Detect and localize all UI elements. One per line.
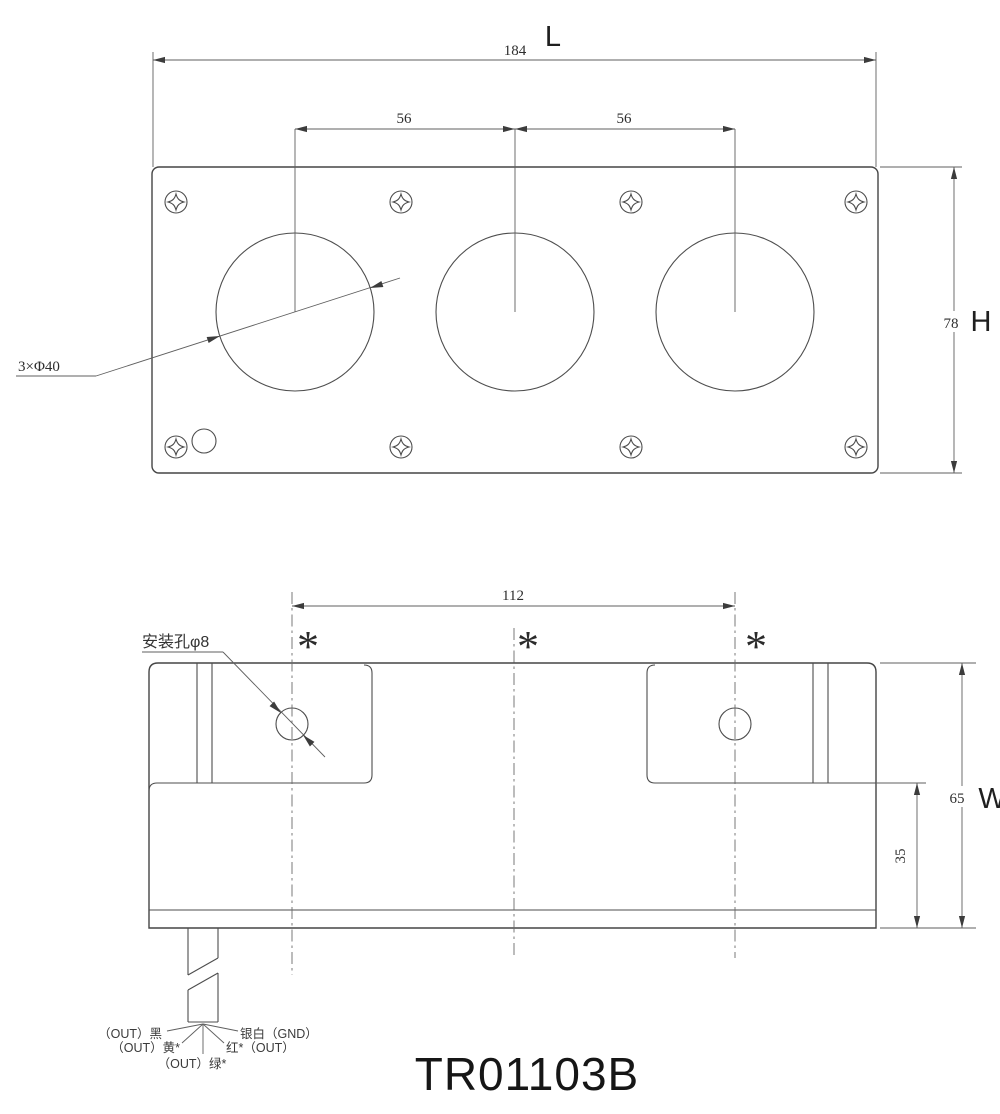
wire-label-silver: 银白（GND） (240, 1026, 318, 1041)
output-cable (188, 928, 218, 1022)
small-pilot-hole (192, 429, 216, 453)
phillips-screw-icon (845, 436, 867, 458)
asterisk-mark: * (517, 622, 539, 671)
callout-phi40: 3×Φ40 (16, 278, 400, 376)
dim-pitch-56: 56 56 (295, 111, 735, 129)
dim-hole-pitch-value: 112 (502, 588, 524, 604)
asterisk-mark: * (745, 622, 767, 671)
front-view-body-outline (149, 663, 876, 928)
height-symbol: H (971, 306, 992, 338)
phillips-screw-icon (390, 191, 412, 213)
dim-height-78: 78 H (880, 167, 991, 473)
phillips-screw-icon (845, 191, 867, 213)
phillips-screw-icon (620, 436, 642, 458)
dim-length-value: 184 (504, 43, 527, 59)
wire-label-black: （OUT）黑 (98, 1027, 162, 1041)
dim-length-184: 184 L (153, 21, 876, 167)
wire-labels: （OUT）黑 （OUT）黄* （OUT）绿* 红*（OUT） 银白（GND） (98, 1024, 318, 1071)
drawing-number: TR01103B (415, 1048, 640, 1100)
dim-hole-pitch-112: 112 (292, 588, 735, 606)
width-symbol: W (978, 783, 1000, 815)
asterisk-mark: * (297, 622, 319, 671)
length-symbol: L (545, 21, 561, 53)
top-view: 184 L 56 56 78 H 3×Φ40 (16, 21, 991, 473)
callout-phi40-text: 3×Φ40 (18, 359, 60, 375)
wire-label-yellow: （OUT）黄* (111, 1041, 180, 1055)
dim-base-value: 35 (893, 849, 909, 864)
dim-pitch-left-value: 56 (397, 111, 413, 127)
right-ear-step (647, 665, 876, 783)
left-ear-step (149, 665, 372, 791)
dim-pitch-right-value: 56 (617, 111, 633, 127)
dim-height-value: 78 (944, 316, 959, 332)
phillips-screw-icon (165, 191, 187, 213)
callout-mount-hole-text: 安装孔φ8 (142, 633, 209, 651)
dim-width-65: 65 W (880, 663, 1000, 928)
phillips-screw-icon (165, 436, 187, 458)
dim-base-35: 35 (876, 783, 926, 928)
drawing-sheet: 184 L 56 56 78 H 3×Φ40 (0, 0, 1000, 1114)
technical-drawing: 184 L 56 56 78 H 3×Φ40 (0, 0, 1000, 1114)
phillips-screw-icon (620, 191, 642, 213)
phillips-screw-icons (165, 191, 867, 458)
phillips-screw-icon (390, 436, 412, 458)
wire-label-red: 红*（OUT） (226, 1040, 295, 1055)
wire-label-green: （OUT）绿* (158, 1056, 227, 1071)
dim-width-value: 65 (950, 791, 965, 807)
front-view: * * * 112 安装孔φ8 65 W 35 (98, 588, 1000, 1071)
